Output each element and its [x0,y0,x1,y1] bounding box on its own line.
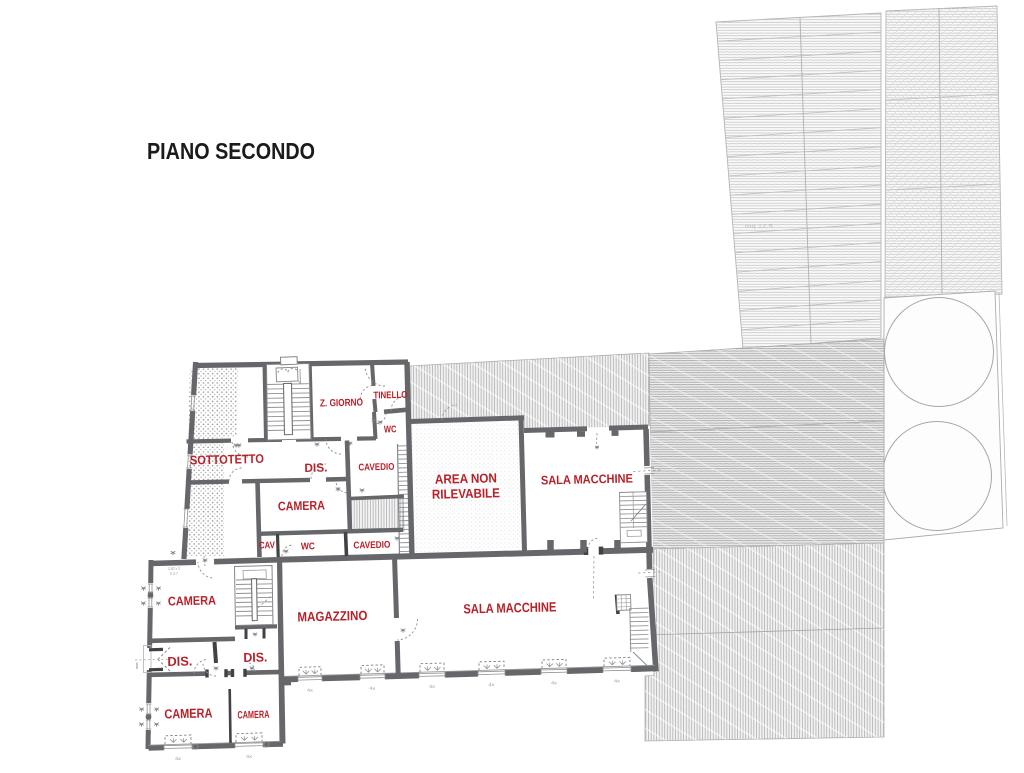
svg-text:4x: 4x [614,678,621,683]
svg-text:DIS.: DIS. [243,649,267,665]
svg-text:CAV: CAV [259,540,276,551]
svg-text:WC: WC [301,541,315,552]
svg-text:4x: 4x [488,682,495,687]
svg-text:4x: 4x [246,754,253,759]
svg-text:WC: WC [384,424,397,435]
svg-text:RILEVABILE: RILEVABILE [432,485,501,502]
svg-text:SOTTOTETTO: SOTTOTETTO [190,452,264,468]
svg-text:CAMERA: CAMERA [237,709,269,722]
svg-text:DIS.: DIS. [167,653,192,669]
svg-text:AREA NON: AREA NON [435,470,497,486]
svg-text:CAMERA: CAMERA [278,498,325,513]
svg-text:CAMERA: CAMERA [168,593,216,608]
svg-text:4x: 4x [307,688,314,693]
svg-text:DIS.: DIS. [304,460,327,475]
svg-text:TINELLO: TINELLO [373,390,408,402]
svg-text:PIANO SECONDO: PIANO SECONDO [147,138,315,164]
svg-text:Z. GIORNO: Z. GIORNO [320,398,363,410]
svg-text:CAMERA: CAMERA [164,705,213,721]
svg-text:mq 12.5: mq 12.5 [745,223,773,230]
svg-text:4x: 4x [429,684,436,689]
svg-text:CAVEDIO: CAVEDIO [358,462,395,474]
svg-text:SALA MACCHINE: SALA MACCHINE [463,599,556,616]
svg-text:MAGAZZINO: MAGAZZINO [297,608,367,625]
svg-text:4x: 4x [551,680,558,685]
svg-text:SALA MACCHINE: SALA MACCHINE [541,471,633,487]
svg-text:CAVEDIO: CAVEDIO [353,540,391,552]
svg-text:4x: 4x [175,756,182,761]
svg-text:4x: 4x [369,686,376,691]
svg-text:h 2.7: h 2.7 [170,571,179,576]
